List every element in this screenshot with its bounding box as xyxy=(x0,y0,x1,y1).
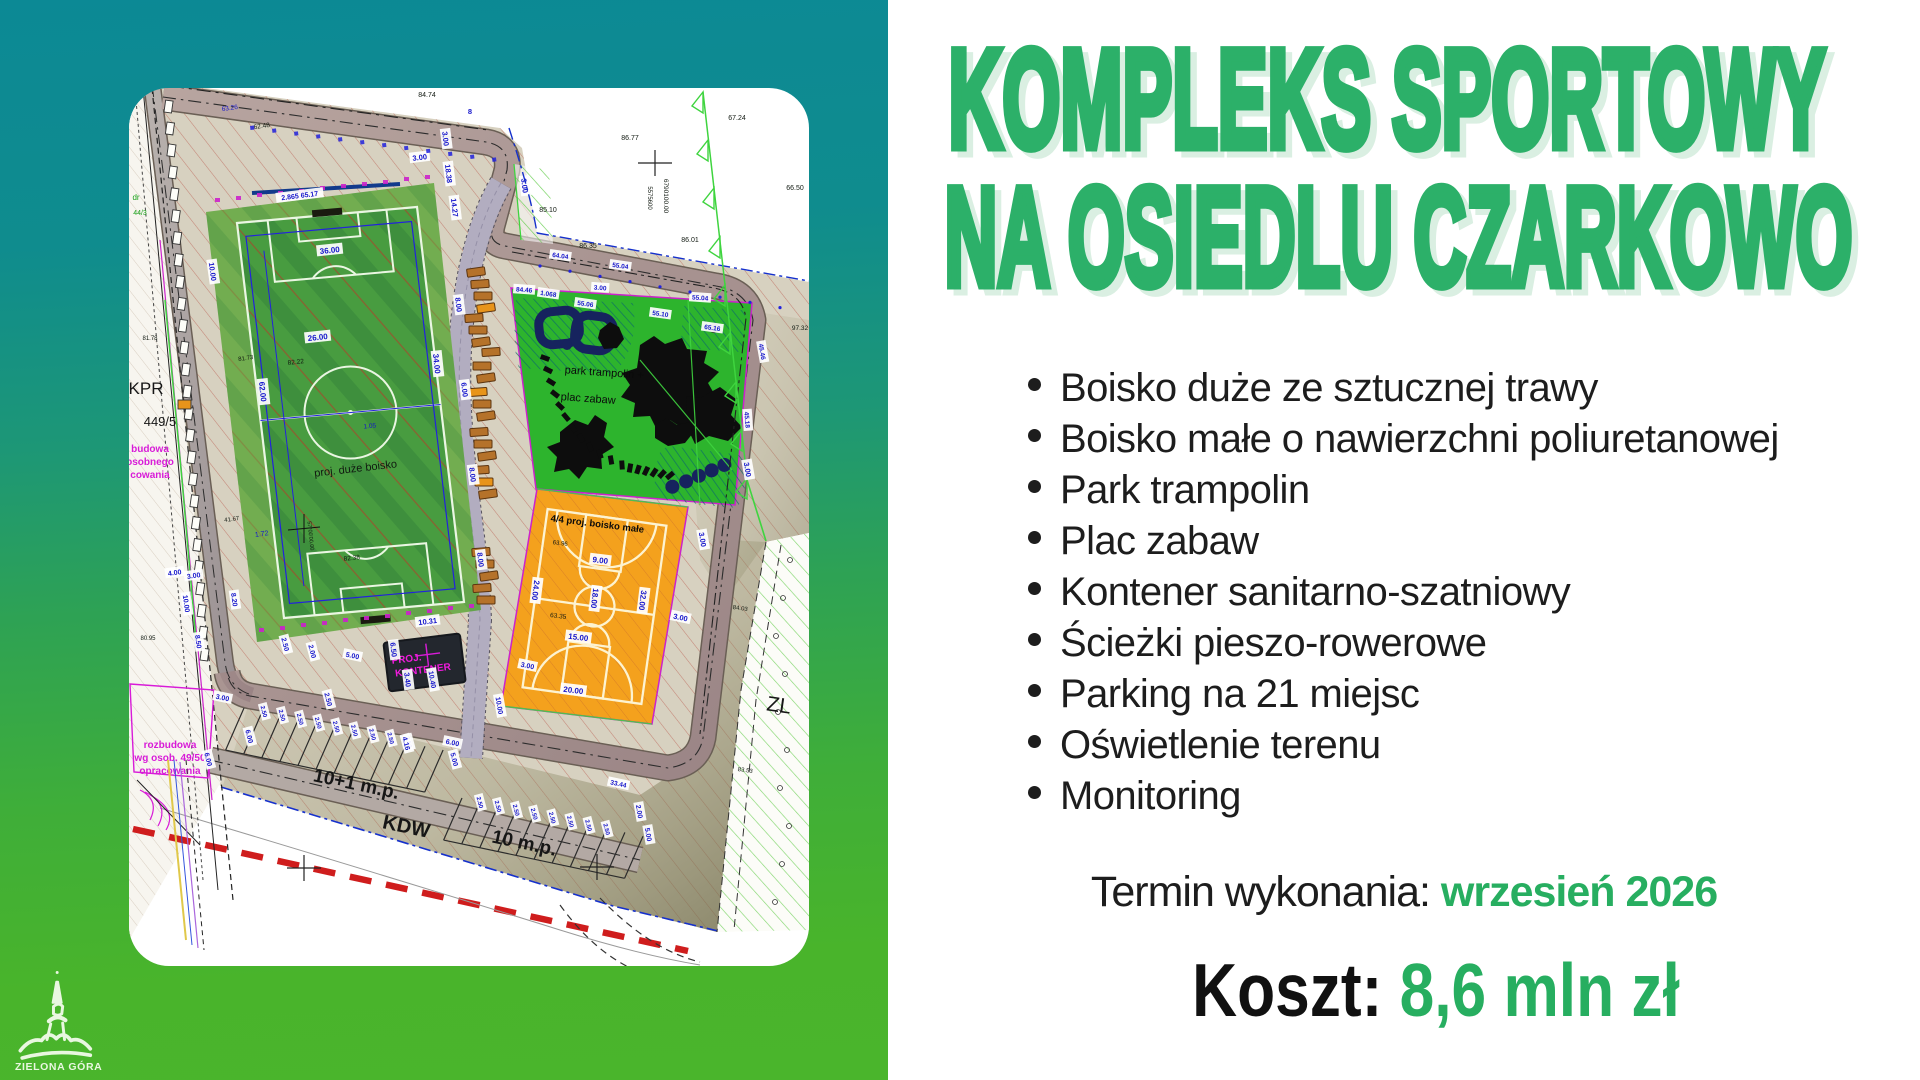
svg-text:6.50: 6.50 xyxy=(388,642,399,658)
svg-text:44/3: 44/3 xyxy=(133,210,147,217)
svg-text:86.01: 86.01 xyxy=(681,237,699,244)
svg-text:8.00: 8.00 xyxy=(453,297,464,313)
svg-text:3.00: 3.00 xyxy=(594,285,607,293)
svg-text:66.50: 66.50 xyxy=(786,185,804,192)
svg-text:KPR: KPR xyxy=(129,379,164,398)
svg-text:budowa: budowa xyxy=(131,444,169,455)
svg-text:ZL: ZL xyxy=(765,692,792,718)
svg-text:81.78: 81.78 xyxy=(142,336,158,342)
svg-text:3.40: 3.40 xyxy=(402,672,413,688)
svg-text:8: 8 xyxy=(468,107,472,116)
svg-text:85.10: 85.10 xyxy=(539,207,557,214)
svg-text:NA OSIEDLU CZARKOWO: NA OSIEDLU CZARKOWO xyxy=(945,158,1853,315)
svg-text:KOMPLEKS SPORTOWY: KOMPLEKS SPORTOWY xyxy=(949,20,1826,177)
svg-text:86.77: 86.77 xyxy=(621,135,639,142)
svg-text:84.74: 84.74 xyxy=(418,92,436,99)
svg-text:6.00: 6.00 xyxy=(459,382,470,398)
svg-text:45.18: 45.18 xyxy=(742,412,750,429)
svg-text:55.04: 55.04 xyxy=(692,294,709,302)
svg-text:3.00: 3.00 xyxy=(412,152,428,163)
svg-text:8.00: 8.00 xyxy=(467,467,478,483)
svg-text:1.05: 1.05 xyxy=(363,422,377,430)
svg-text:86.35: 86.35 xyxy=(579,243,597,250)
svg-text:osobnego: osobnego xyxy=(126,457,174,468)
svg-text:3.00: 3.00 xyxy=(440,131,451,147)
svg-text:cowania: cowania xyxy=(130,470,170,481)
svg-text:ZIELONA GÓRA: ZIELONA GÓRA xyxy=(15,1060,102,1073)
svg-text:wg osob. 49/50: wg osob. 49/50 xyxy=(133,753,206,764)
svg-text:8.00: 8.00 xyxy=(475,552,486,568)
svg-text:449/5: 449/5 xyxy=(144,414,177,429)
svg-text:5575600: 5575600 xyxy=(646,186,652,210)
svg-text:67.24: 67.24 xyxy=(728,115,746,122)
svg-text:80.95: 80.95 xyxy=(140,636,156,642)
svg-text:dr: dr xyxy=(132,193,139,202)
svg-text:rozbudowa: rozbudowa xyxy=(144,740,197,751)
svg-text:6790100.00: 6790100.00 xyxy=(662,179,669,214)
svg-text:97.32: 97.32 xyxy=(792,325,809,332)
svg-text:84.46: 84.46 xyxy=(516,286,533,294)
